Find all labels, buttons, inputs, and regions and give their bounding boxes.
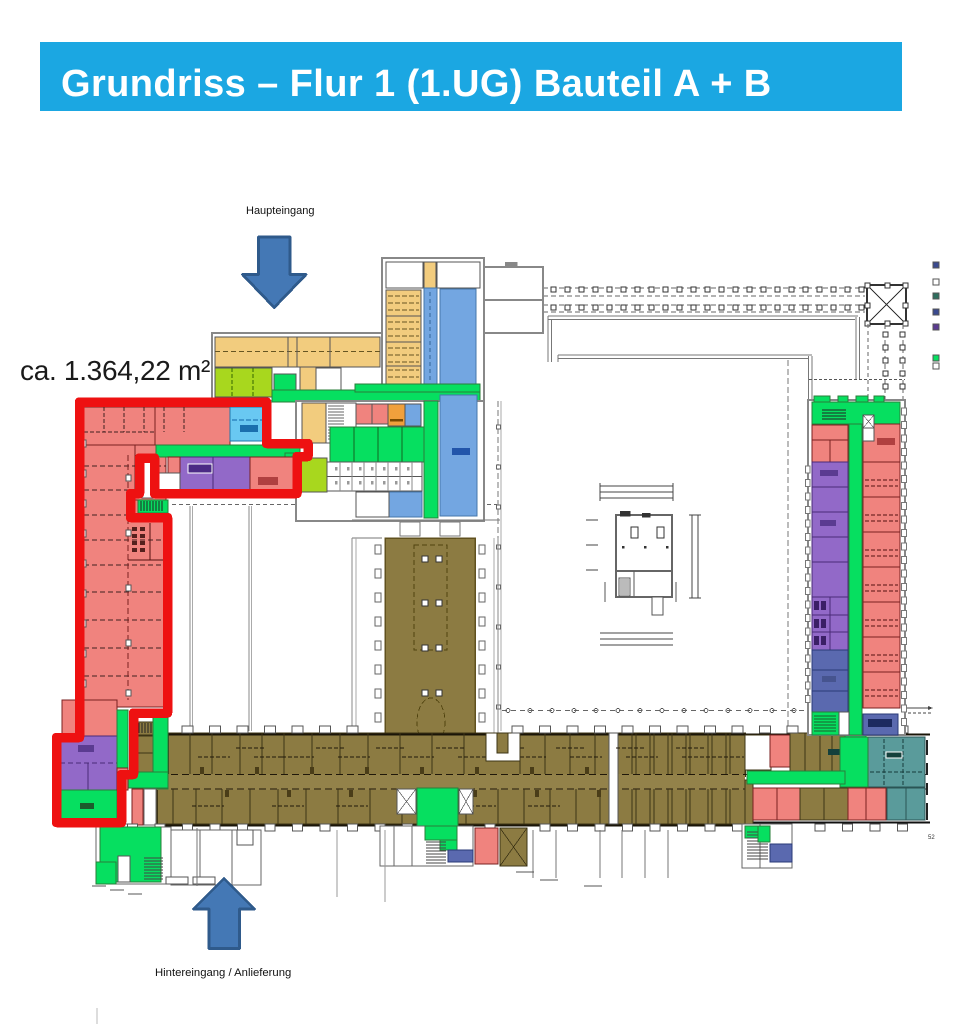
svg-text:Hintereingang / Anlieferung: Hintereingang / Anlieferung <box>155 967 291 979</box>
svg-text:ca. 1.364,22 m²: ca. 1.364,22 m² <box>20 355 210 386</box>
svg-text:Grundriss – Flur 1 (1.UG) Baut: Grundriss – Flur 1 (1.UG) Bauteil A + B <box>61 63 772 105</box>
svg-text:Haupteingang: Haupteingang <box>246 205 315 217</box>
svg-text:52: 52 <box>928 835 935 841</box>
